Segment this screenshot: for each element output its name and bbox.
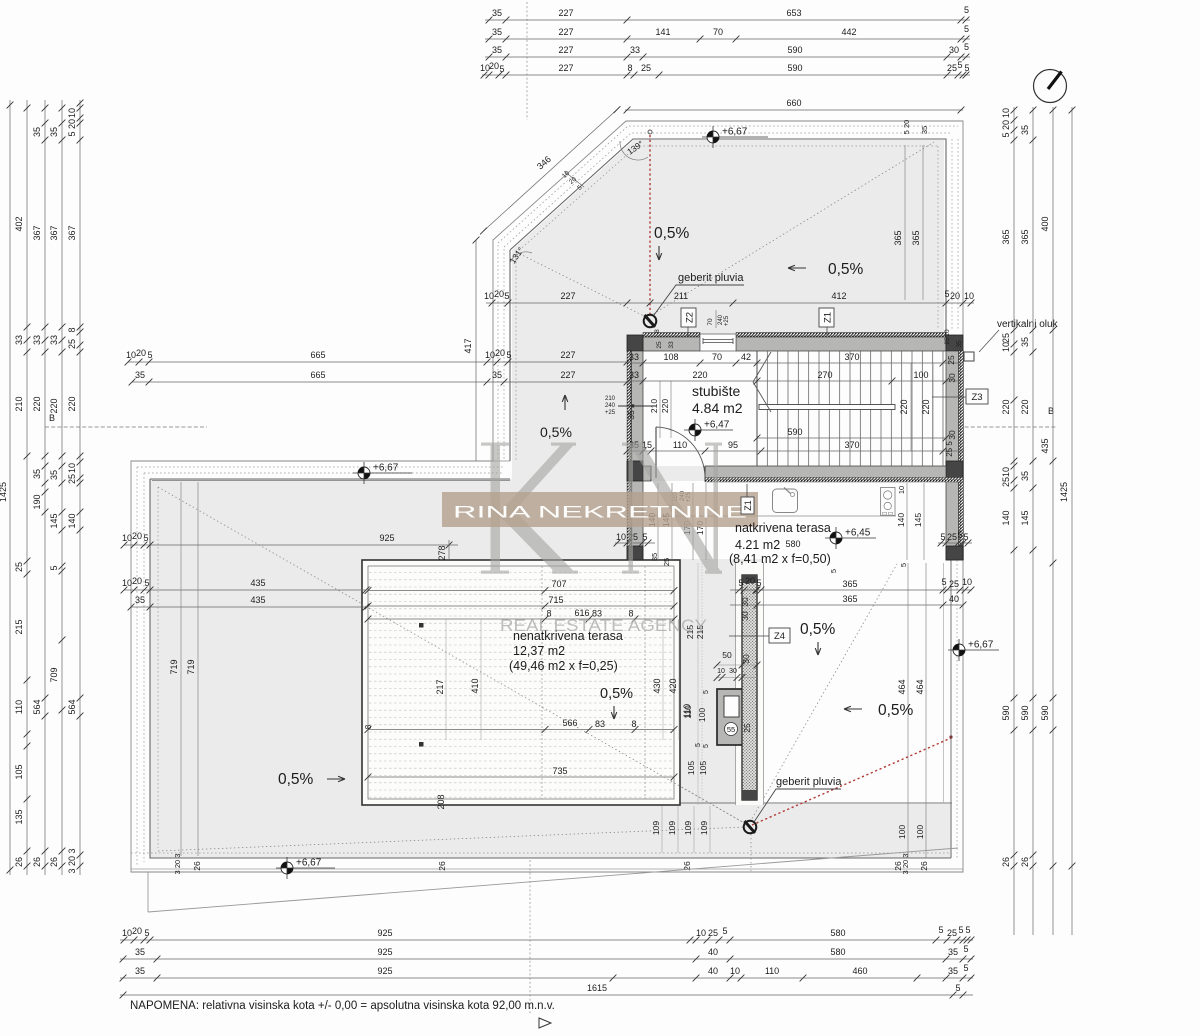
svg-text:Z1: Z1: [823, 312, 834, 323]
svg-text:35: 35: [948, 966, 958, 976]
svg-text:10: 10: [1001, 108, 1011, 118]
svg-text:227: 227: [560, 291, 575, 301]
svg-text:227: 227: [558, 63, 573, 73]
svg-text:417: 417: [463, 338, 473, 353]
svg-text:220: 220: [32, 396, 42, 411]
svg-text:30: 30: [740, 611, 750, 621]
svg-text:10: 10: [122, 578, 132, 588]
svg-text:10: 10: [962, 577, 972, 587]
svg-text:464: 464: [915, 679, 925, 694]
svg-text:12,37 m2: 12,37 m2: [513, 644, 565, 658]
svg-text:33: 33: [668, 341, 675, 349]
svg-text:0,5%: 0,5%: [278, 771, 314, 788]
svg-text:0,5%: 0,5%: [800, 621, 836, 638]
svg-text:367: 367: [49, 225, 59, 240]
svg-text:5: 5: [738, 578, 743, 588]
svg-text:5: 5: [899, 563, 908, 567]
svg-text:10: 10: [485, 350, 495, 360]
svg-text:geberit pluvia: geberit pluvia: [776, 776, 842, 788]
svg-text:35: 35: [135, 595, 145, 605]
svg-text:35: 35: [920, 126, 929, 134]
svg-text:109: 109: [667, 821, 677, 835]
svg-text:240: 240: [605, 403, 616, 409]
svg-text:25: 25: [1001, 477, 1011, 487]
svg-text:5: 5: [964, 63, 969, 73]
svg-text:735: 735: [552, 766, 567, 776]
svg-text:70: 70: [707, 318, 714, 326]
svg-text:135: 135: [14, 809, 24, 824]
svg-text:35: 35: [135, 370, 145, 380]
svg-text:25: 25: [656, 341, 663, 349]
svg-text:26: 26: [1020, 857, 1030, 867]
svg-text:435: 435: [1040, 438, 1050, 453]
svg-text:(49,46 m2 x f=0,25): (49,46 m2 x f=0,25): [509, 659, 618, 673]
svg-text:208: 208: [436, 794, 446, 809]
svg-text:25: 25: [947, 63, 957, 73]
svg-text:3 20 3: 3 20 3: [901, 854, 910, 875]
svg-text:70: 70: [712, 352, 722, 362]
svg-text:145: 145: [913, 513, 923, 527]
svg-text:220: 220: [692, 370, 707, 380]
svg-text:20: 20: [489, 61, 499, 71]
svg-text:464: 464: [897, 679, 907, 694]
svg-text:590: 590: [787, 63, 802, 73]
svg-text:5: 5: [722, 926, 727, 936]
svg-text:8: 8: [364, 724, 373, 729]
svg-text:105: 105: [686, 761, 696, 775]
svg-text:564: 564: [32, 699, 42, 714]
svg-text:278: 278: [437, 545, 447, 560]
svg-text:26: 26: [49, 857, 59, 867]
svg-text:370: 370: [844, 352, 859, 362]
svg-text:367: 367: [32, 225, 42, 240]
svg-text:10: 10: [897, 486, 906, 494]
svg-text:665: 665: [310, 350, 325, 360]
svg-text:5: 5: [964, 5, 969, 15]
svg-text:715: 715: [548, 595, 563, 605]
svg-text:590: 590: [787, 427, 802, 437]
svg-text:220: 220: [1001, 399, 1011, 414]
svg-text:5: 5: [957, 530, 962, 540]
svg-text:220: 220: [899, 399, 909, 414]
svg-text:5: 5: [965, 925, 970, 935]
svg-text:0,5%: 0,5%: [878, 702, 914, 719]
svg-text:26: 26: [32, 857, 42, 867]
svg-text:5: 5: [963, 944, 968, 954]
svg-text:35: 35: [1020, 337, 1030, 347]
svg-text:660: 660: [786, 98, 801, 108]
svg-text:25: 25: [949, 579, 959, 589]
svg-text:1425: 1425: [0, 482, 8, 502]
svg-text:10: 10: [67, 108, 77, 118]
svg-text:190: 190: [32, 494, 42, 509]
svg-text:10: 10: [484, 291, 494, 301]
svg-text:580: 580: [830, 947, 845, 957]
svg-text:5: 5: [963, 963, 968, 973]
svg-text:35: 35: [650, 553, 659, 561]
svg-text:5: 5: [756, 578, 761, 588]
svg-text:5: 5: [941, 577, 946, 587]
svg-text:25 5: 25 5: [945, 441, 954, 457]
svg-text:925: 925: [379, 533, 394, 543]
svg-text:35: 35: [32, 469, 42, 479]
svg-text:5: 5: [958, 925, 963, 935]
svg-text:20: 20: [132, 576, 142, 586]
svg-text:590: 590: [1020, 705, 1030, 720]
svg-text:412: 412: [831, 291, 846, 301]
svg-text:stubište: stubište: [692, 383, 740, 399]
svg-text:100: 100: [897, 825, 907, 839]
svg-text:20: 20: [1001, 120, 1011, 130]
svg-text:40: 40: [708, 966, 718, 976]
svg-text:210: 210: [649, 399, 659, 413]
svg-text:5: 5: [944, 289, 949, 299]
svg-text:5 20: 5 20: [902, 120, 911, 135]
svg-text:10: 10: [730, 966, 740, 976]
svg-text:25: 25: [67, 474, 77, 484]
svg-text:140: 140: [896, 513, 906, 527]
svg-text:+25: +25: [724, 315, 730, 326]
svg-text:5: 5: [1001, 132, 1011, 137]
svg-text:925: 925: [377, 966, 392, 976]
svg-text:35: 35: [492, 27, 502, 37]
svg-text:365: 365: [842, 594, 857, 604]
svg-text:0,5%: 0,5%: [654, 225, 690, 242]
svg-text:35: 35: [492, 8, 502, 18]
svg-text:365: 365: [911, 230, 921, 245]
svg-text:20: 20: [67, 119, 77, 129]
svg-text:215: 215: [14, 619, 24, 634]
svg-text:5: 5: [940, 532, 945, 542]
svg-text:5: 5: [703, 690, 710, 694]
svg-text:1615: 1615: [587, 983, 607, 993]
svg-text:220: 220: [67, 396, 77, 411]
svg-text:26: 26: [1001, 857, 1011, 867]
svg-text:10: 10: [122, 533, 132, 543]
svg-text:70: 70: [713, 27, 723, 37]
svg-text:442: 442: [841, 27, 856, 37]
svg-text:25: 25: [947, 928, 957, 938]
svg-text:10: 10: [944, 329, 951, 337]
svg-text:25: 25: [1001, 333, 1011, 343]
svg-text:35: 35: [135, 966, 145, 976]
svg-text:25: 25: [662, 558, 671, 566]
svg-text:10: 10: [67, 463, 77, 473]
svg-text:145: 145: [49, 513, 59, 528]
svg-text:55: 55: [727, 725, 735, 734]
svg-text:430: 430: [652, 678, 662, 693]
svg-text:5: 5: [938, 925, 943, 935]
svg-text:+6,67: +6,67: [296, 858, 322, 869]
svg-text:227: 227: [560, 350, 575, 360]
svg-text:109: 109: [699, 821, 709, 835]
svg-text:110: 110: [683, 705, 693, 719]
svg-text:20: 20: [950, 291, 960, 301]
svg-text:40: 40: [708, 947, 718, 957]
svg-text:3 20 3: 3 20 3: [67, 848, 77, 873]
svg-text:10: 10: [1001, 342, 1011, 352]
svg-text:26: 26: [14, 857, 24, 867]
svg-text:83: 83: [595, 719, 605, 729]
svg-text:NAPOMENA: relativna visinska k: NAPOMENA: relativna visinska kota +/- 0,…: [130, 1000, 555, 1012]
svg-text:110: 110: [765, 966, 779, 976]
svg-text:20: 20: [745, 576, 755, 586]
svg-text:5: 5: [143, 533, 148, 543]
svg-text:50: 50: [722, 650, 732, 660]
svg-text:410: 410: [470, 678, 480, 693]
svg-text:35: 35: [135, 947, 145, 957]
svg-text:227: 227: [558, 45, 573, 55]
svg-text:vertikalni oluk: vertikalni oluk: [997, 319, 1059, 330]
svg-text:435: 435: [250, 578, 265, 588]
svg-text:5: 5: [964, 24, 969, 34]
svg-text:25: 25: [67, 339, 77, 349]
svg-text:0,5%: 0,5%: [600, 686, 633, 702]
svg-text:33: 33: [630, 45, 640, 55]
svg-text:566: 566: [562, 718, 577, 728]
svg-text:227: 227: [558, 8, 573, 18]
svg-text:365: 365: [1020, 229, 1030, 244]
svg-text:145: 145: [1020, 510, 1030, 525]
svg-text:5: 5: [963, 532, 968, 542]
svg-text:564: 564: [67, 699, 77, 714]
svg-text:20: 20: [495, 348, 505, 358]
svg-text:25: 25: [742, 723, 752, 733]
svg-text:95: 95: [728, 440, 738, 450]
svg-text:26: 26: [919, 861, 929, 871]
svg-text:30: 30: [947, 373, 957, 383]
svg-text:365: 365: [1001, 229, 1011, 244]
svg-text:geberit pluvia: geberit pluvia: [678, 272, 744, 284]
svg-text:26: 26: [437, 861, 447, 871]
svg-text:220: 220: [1020, 399, 1030, 414]
svg-text:665: 665: [310, 370, 325, 380]
svg-text:220: 220: [660, 399, 670, 413]
svg-text:4.84 m2: 4.84 m2: [692, 400, 743, 416]
svg-text:110: 110: [673, 440, 687, 450]
svg-text:140: 140: [67, 513, 77, 528]
svg-text:0,5%: 0,5%: [828, 261, 864, 278]
svg-text:20: 20: [132, 531, 142, 541]
svg-text:400: 400: [1040, 216, 1050, 231]
svg-text:42: 42: [741, 352, 751, 362]
svg-text:365: 365: [893, 230, 903, 245]
svg-text:370: 370: [844, 440, 859, 450]
svg-text:5: 5: [49, 565, 59, 570]
svg-text:109: 109: [651, 821, 661, 835]
svg-text:Z1: Z1: [743, 500, 753, 511]
svg-text:227: 227: [560, 370, 575, 380]
svg-text:109: 109: [683, 821, 693, 835]
svg-text:35: 35: [948, 947, 958, 957]
svg-text:+6,67: +6,67: [722, 127, 748, 138]
svg-text:5: 5: [147, 350, 152, 360]
svg-text:25: 25: [946, 355, 956, 365]
svg-text:5: 5: [964, 42, 969, 52]
svg-text:110: 110: [14, 700, 24, 714]
svg-text:220: 220: [49, 398, 59, 413]
svg-text:5: 5: [695, 743, 702, 747]
svg-text:40: 40: [949, 594, 959, 604]
svg-text:35: 35: [49, 470, 59, 480]
svg-text:20: 20: [494, 289, 504, 299]
svg-text:590: 590: [1001, 705, 1011, 720]
svg-text:367: 367: [67, 225, 77, 240]
svg-text:709: 709: [49, 667, 59, 682]
svg-text:natkrivena terasa: natkrivena terasa: [735, 521, 831, 535]
svg-text:30: 30: [947, 430, 957, 440]
svg-text:217: 217: [435, 679, 445, 694]
svg-text:8: 8: [627, 63, 632, 73]
svg-text:10: 10: [122, 928, 132, 938]
svg-text:35: 35: [49, 127, 59, 137]
svg-text:+6,67: +6,67: [968, 640, 994, 651]
svg-text:RINA NEKRETNINE: RINA NEKRETNINE: [453, 504, 747, 522]
svg-text:420: 420: [668, 678, 678, 693]
svg-text:580: 580: [785, 539, 800, 549]
svg-text:402: 402: [14, 216, 24, 231]
svg-text:580: 580: [830, 928, 845, 938]
svg-text:1425: 1425: [1059, 482, 1069, 502]
svg-text:719: 719: [169, 659, 179, 674]
svg-text:5: 5: [703, 744, 710, 748]
svg-text:25: 25: [708, 928, 718, 938]
svg-text:435: 435: [250, 595, 265, 605]
svg-text:Z3: Z3: [971, 392, 982, 403]
svg-text:0,5%: 0,5%: [540, 424, 572, 440]
svg-text:33: 33: [14, 335, 24, 345]
svg-text:35: 35: [1020, 471, 1030, 481]
svg-text:707: 707: [551, 579, 566, 589]
svg-text:8: 8: [67, 327, 77, 332]
svg-text:5: 5: [955, 983, 960, 993]
svg-text:220: 220: [921, 399, 931, 414]
svg-text:5: 5: [67, 131, 77, 136]
svg-text:5: 5: [957, 60, 962, 70]
svg-text:35: 35: [492, 45, 502, 55]
svg-text:925: 925: [377, 928, 392, 938]
svg-text:8: 8: [654, 329, 661, 333]
svg-text:30: 30: [729, 668, 737, 675]
svg-text:+6,67: +6,67: [373, 463, 399, 474]
svg-text:10: 10: [1001, 467, 1011, 477]
svg-text:5: 5: [499, 64, 504, 74]
svg-text:10: 10: [964, 291, 974, 301]
svg-text:108: 108: [663, 352, 678, 362]
svg-text:33: 33: [629, 370, 639, 380]
svg-text:10: 10: [616, 532, 626, 542]
svg-text:105: 105: [14, 764, 24, 779]
svg-text:590: 590: [787, 45, 802, 55]
svg-text:5: 5: [829, 569, 838, 573]
svg-text:10: 10: [696, 928, 706, 938]
svg-text:33: 33: [49, 335, 59, 345]
svg-text:210: 210: [14, 396, 24, 411]
svg-text:35: 35: [492, 370, 502, 380]
svg-text:25: 25: [14, 562, 24, 572]
svg-text:140: 140: [1001, 510, 1011, 525]
svg-text:365: 365: [842, 579, 857, 589]
svg-text:211: 211: [674, 291, 688, 301]
svg-text:227: 227: [558, 27, 573, 37]
svg-text:35: 35: [956, 340, 963, 348]
svg-text:210: 210: [605, 396, 616, 402]
svg-text:30: 30: [741, 654, 751, 664]
svg-text:33: 33: [32, 335, 42, 345]
svg-text:25: 25: [944, 337, 951, 345]
svg-text:460: 460: [852, 966, 867, 976]
svg-text:4.21 m2: 4.21 m2: [735, 538, 780, 552]
svg-text:Z4: Z4: [774, 631, 785, 642]
svg-text:5: 5: [506, 350, 511, 360]
svg-text:100: 100: [915, 825, 925, 839]
svg-text:+6,47: +6,47: [704, 420, 730, 431]
svg-text:3 20 3: 3 20 3: [173, 854, 182, 875]
svg-text:35: 35: [1020, 125, 1030, 135]
svg-text:8: 8: [631, 719, 636, 729]
svg-text:30: 30: [949, 45, 959, 55]
svg-text:25: 25: [947, 532, 957, 542]
svg-text:20: 20: [136, 348, 146, 358]
svg-text:653: 653: [786, 8, 801, 18]
svg-text:Z2: Z2: [685, 312, 696, 323]
svg-text:590: 590: [1040, 705, 1050, 720]
svg-text:925: 925: [377, 947, 392, 957]
svg-text:nenatkrivena terasa: nenatkrivena terasa: [513, 629, 623, 643]
svg-text:5: 5: [144, 928, 149, 938]
svg-text:25: 25: [641, 63, 651, 73]
svg-text:100: 100: [913, 370, 928, 380]
svg-text:33: 33: [629, 352, 639, 362]
svg-text:10: 10: [717, 668, 725, 675]
svg-text:719: 719: [186, 659, 196, 674]
svg-text:26: 26: [192, 861, 202, 871]
svg-text:105: 105: [698, 761, 708, 775]
svg-text:20: 20: [132, 926, 142, 936]
svg-text:35: 35: [626, 410, 636, 420]
svg-text:5: 5: [642, 532, 647, 542]
svg-text:(8,41 m2 x f=0,50): (8,41 m2 x f=0,50): [729, 552, 831, 566]
svg-text:141: 141: [655, 27, 670, 37]
svg-text:+6,45: +6,45: [845, 528, 871, 539]
svg-text:270: 270: [817, 370, 832, 380]
svg-text:+25: +25: [605, 410, 616, 416]
svg-text:35: 35: [32, 127, 42, 137]
svg-text:5: 5: [144, 578, 149, 588]
svg-text:10: 10: [126, 350, 136, 360]
svg-text:30: 30: [740, 597, 750, 607]
svg-text:5: 5: [504, 291, 509, 301]
